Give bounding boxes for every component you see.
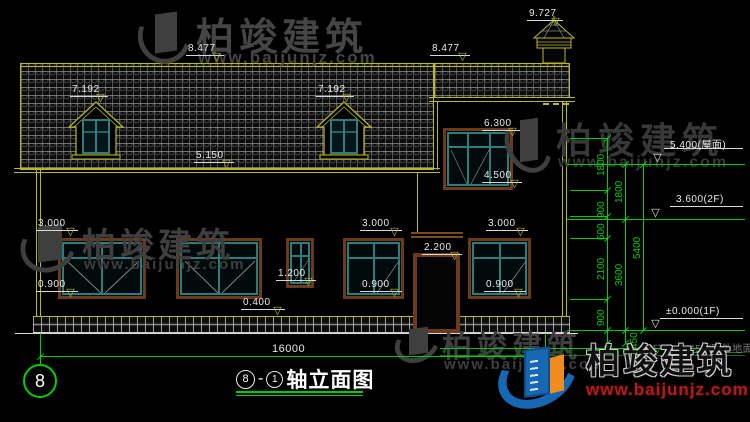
level-marker-triangle: ▽ — [650, 319, 661, 330]
dim-ext-line — [570, 190, 607, 191]
level-marker-underline — [660, 318, 743, 319]
title-text: 轴立面图 — [286, 364, 374, 394]
cad-elevation-drawing: 8.477▽8.477▽9.727▽7.192▽7.192▽5.150▽6.30… — [0, 0, 750, 422]
level-marker-text: 3.000 — [38, 218, 66, 229]
level-marker-triangle: ▽ — [221, 159, 232, 170]
level-marker-text: 3.000 — [488, 218, 516, 229]
brand-logo-text: 柏竣建筑 — [586, 344, 749, 380]
title-axis-end: 1 — [266, 371, 283, 388]
dim-label: 2100 — [596, 258, 607, 280]
dim-ext-line — [570, 138, 607, 139]
level-marker-triangle: ▽ — [449, 251, 460, 262]
level-marker-triangle: ▽ — [507, 127, 518, 138]
brand-logo-icon — [494, 344, 580, 408]
dim-chain-line — [625, 164, 626, 343]
level-marker-text: 2.200 — [424, 242, 452, 253]
level-marker-text: 0.900 — [486, 279, 514, 290]
level-marker-triangle: ▽ — [509, 179, 520, 190]
level-marker-text: 5.150 — [196, 150, 224, 161]
level-marker-triangle: ▽ — [389, 227, 400, 238]
level-marker-triangle: ▽ — [95, 93, 106, 104]
title-axis-start: 8 — [236, 370, 255, 389]
overall-dim-text: 16000 — [272, 343, 305, 355]
logo-building-orange — [550, 354, 564, 393]
overall-dim-line — [40, 356, 545, 357]
level-marker-triangle: ▽ — [211, 52, 222, 63]
axis-stem-line — [40, 333, 41, 364]
level-marker-triangle: ▽ — [650, 208, 661, 219]
dim-label: 900 — [596, 309, 607, 326]
level-marker-triangle: ▽ — [515, 227, 526, 238]
level-marker-triangle: ▽ — [303, 277, 314, 288]
dim-label: 1800 — [614, 181, 625, 203]
level-marker-triangle: ▽ — [389, 288, 400, 299]
level-marker-text: 0.900 — [38, 279, 66, 290]
level-marker-text: 3.600(2F) — [676, 194, 724, 205]
level-marker-text: 4.500 — [484, 170, 512, 181]
dim-ext-line — [570, 238, 607, 239]
level-marker-triangle: ▽ — [550, 17, 561, 28]
level-marker-triangle: ▽ — [457, 52, 468, 63]
level-marker-triangle: ▽ — [65, 227, 76, 238]
dim-ext-line — [570, 330, 643, 331]
axis-bubble-8: 8 — [23, 364, 57, 398]
dim-ext-line — [570, 164, 643, 165]
level-marker-triangle: ▽ — [652, 153, 663, 164]
dim-chain-line — [643, 164, 644, 330]
level-marker-triangle: ▽ — [341, 93, 352, 104]
level-marker-text: 0.400 — [243, 297, 271, 308]
brand-logo: 柏竣建筑 www.baijunjz.com — [494, 344, 749, 408]
level-marker-triangle: ▽ — [272, 306, 283, 317]
level-marker-triangle: ▽ — [513, 288, 524, 299]
level-marker-triangle: ▽ — [65, 288, 76, 299]
drawing-title: 8 - 1 轴立面图 — [236, 364, 374, 394]
level-marker-text: 1.200 — [278, 268, 306, 279]
level-marker-text: 8.477 — [432, 43, 460, 54]
level-marker-text: 0.900 — [362, 279, 390, 290]
logo-building-blue — [524, 346, 550, 398]
dim-ext-line — [570, 216, 607, 217]
level-marker-underline — [664, 148, 743, 149]
dim-label: 3600 — [614, 264, 625, 286]
level-marker-underline — [670, 206, 743, 207]
dim-ext-line — [570, 299, 607, 300]
brand-logo-site: www.baijunjz.com — [586, 380, 749, 400]
dim-chain-line — [607, 138, 608, 343]
dim-label: 5400 — [632, 237, 643, 259]
title-dash: - — [258, 370, 263, 388]
level-marker-text: ±0.000(1F) — [666, 306, 720, 317]
level-marker-text: 3.000 — [362, 218, 390, 229]
level-ext-line — [567, 219, 745, 220]
